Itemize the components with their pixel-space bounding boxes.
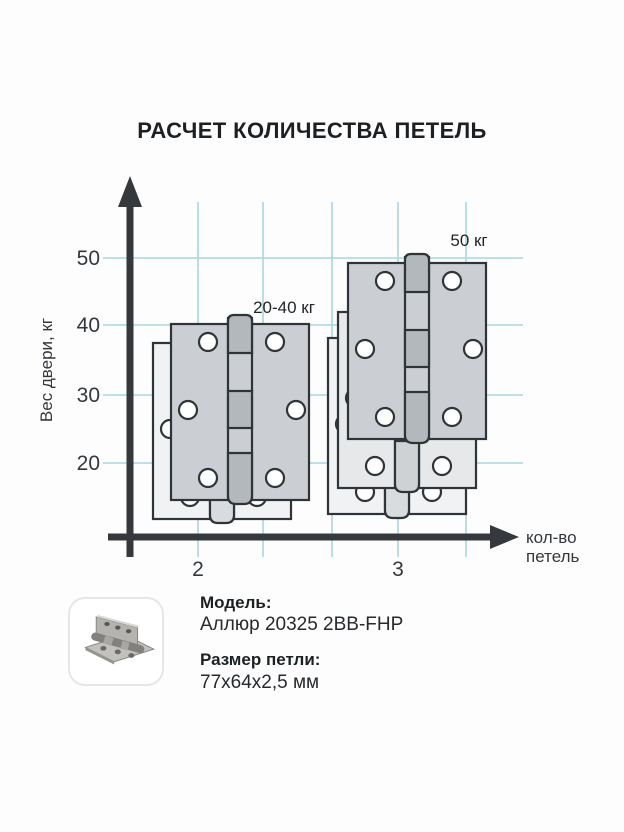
size-label: Размер петли: <box>200 650 320 670</box>
model-value: Аллюр 20325 2BB-FHP <box>200 614 403 636</box>
x-axis-arrow-icon <box>490 525 519 549</box>
hinge-group-2 <box>153 315 309 523</box>
x-tick-2: 2 <box>192 558 204 581</box>
y-axis-title: Вес двери, кг <box>37 318 56 422</box>
x-axis-title-line2: петель <box>526 547 580 566</box>
y-tick-40: 40 <box>77 314 100 337</box>
hinge-count-chart: 50 40 30 20 2 3 Вес двери, кг кол-во пет… <box>0 0 624 832</box>
y-tick-20: 20 <box>77 452 100 475</box>
product-photo-hinge-icon <box>76 606 156 678</box>
annotation-weight-3-hinges: 50 кг <box>450 231 487 250</box>
y-axis <box>118 176 142 557</box>
hinge-pictogram-front <box>171 315 309 504</box>
x-axis-title-line1: кол-во <box>526 528 577 547</box>
y-tick-50: 50 <box>77 247 100 270</box>
hinge-infographic-page: РАСЧЕТ КОЛИЧЕСТВА ПЕТЕЛЬ <box>0 0 624 832</box>
x-axis <box>108 525 519 549</box>
hinge-pictogram-front <box>348 254 486 443</box>
product-photo <box>68 597 164 686</box>
x-tick-3: 3 <box>392 558 404 581</box>
hinge-group-3 <box>328 254 486 518</box>
model-label: Модель: <box>200 593 271 613</box>
y-axis-arrow-icon <box>118 176 142 207</box>
y-tick-30: 30 <box>77 384 100 407</box>
size-value: 77х64х2,5 мм <box>200 672 319 694</box>
annotation-weight-2-hinges: 20-40 кг <box>253 298 315 317</box>
